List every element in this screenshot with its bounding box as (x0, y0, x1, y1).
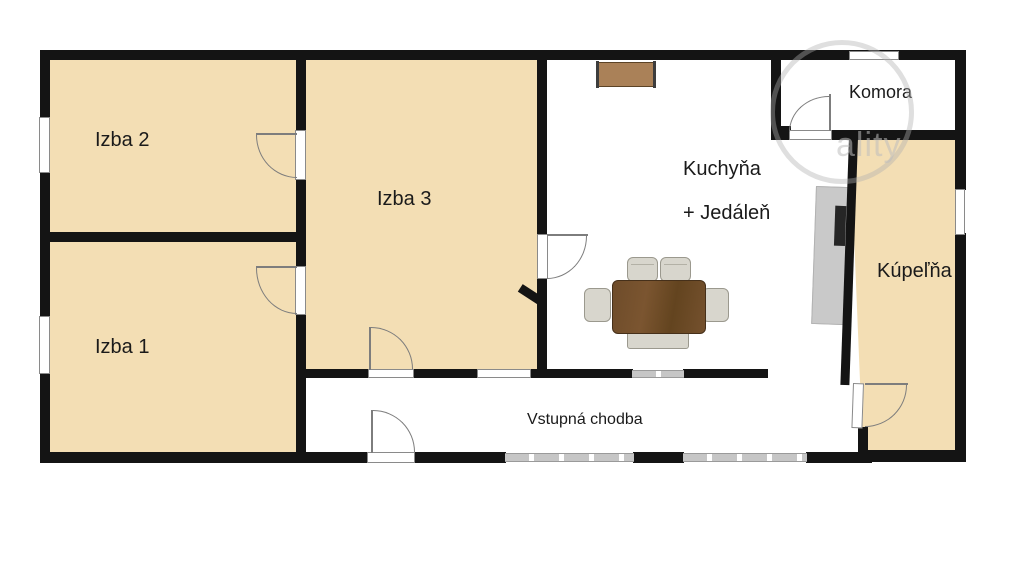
wall-bottom (633, 452, 684, 463)
room-label-izba2: Izba 2 (95, 129, 149, 152)
wall-izba12 (48, 232, 298, 242)
watermark-text: ality (836, 126, 901, 165)
window-izba1-left (39, 316, 50, 374)
room-label-kitchen-line1: Kuchyňa (683, 158, 761, 181)
floor-plan: Izba 2 Izba 3 Izba 1 Kuchyňa + Jedáleň K… (0, 0, 1011, 570)
window-hall-bottom-1 (505, 453, 634, 462)
dining-chair-top-left (627, 257, 658, 282)
wall-hall-top (683, 369, 768, 378)
room-label-kitchen-line2: + Jedáleň (683, 202, 770, 225)
sideboard-post (653, 61, 656, 88)
window-kupelna-right (955, 189, 965, 235)
room-label-chodba: Vstupná chodba (527, 411, 643, 429)
wall-bottom (414, 452, 506, 463)
door-arc-izba3-kitchen (547, 236, 587, 279)
wall-izba23 (296, 58, 306, 132)
sideboard-post (596, 61, 599, 88)
doorway-izba3-hall (368, 369, 414, 378)
wall-izba13 (296, 179, 306, 268)
wall-izba3-kitchen (537, 58, 547, 236)
wall-hall-top (296, 369, 369, 378)
dining-table (612, 280, 706, 334)
window-hall-bottom-2 (683, 453, 807, 462)
dining-chair-left (584, 288, 611, 322)
wall-bottom (40, 452, 370, 463)
wall-izba1-hall (296, 314, 306, 454)
sideboard (596, 62, 656, 87)
window-izba2-left (39, 117, 50, 173)
doorway-entrance (367, 452, 415, 463)
window-hall-kitchen (632, 370, 684, 378)
wall-izba3-kitchen (537, 278, 547, 377)
threshold-izba3-hall (477, 369, 531, 378)
room-label-izba1: Izba 1 (95, 336, 149, 359)
wall-left (40, 50, 50, 463)
wall-bath-bottom (860, 450, 966, 462)
doorway-kupelna (851, 383, 864, 428)
door-arc-entrance (373, 410, 415, 452)
wall-hall-top (413, 369, 478, 378)
room-izba3-floor (302, 58, 542, 373)
wall-right (955, 50, 966, 190)
room-label-kupelna: Kúpeľňa (877, 260, 952, 283)
wall-right (955, 233, 966, 462)
dining-chair-top-right (660, 257, 691, 282)
wall-hall-top (531, 369, 633, 378)
dining-chair-right (702, 288, 729, 322)
room-label-izba3: Izba 3 (377, 188, 431, 211)
wall-bath-left (858, 427, 868, 453)
